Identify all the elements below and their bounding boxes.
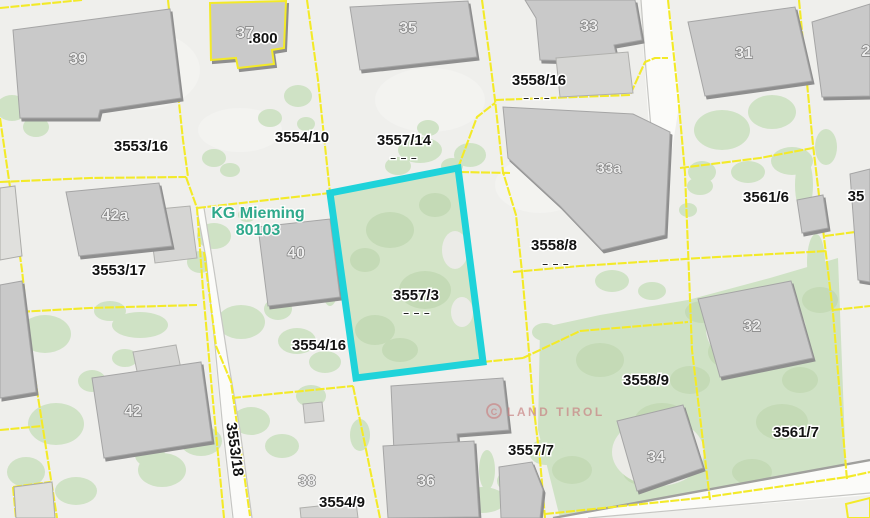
boundary-line — [460, 172, 510, 173]
building-label: 33 — [580, 18, 598, 35]
parcel-label-edge-partial: 35 — [848, 188, 865, 205]
building-label: 31 — [735, 45, 753, 62]
vegetation-patch — [55, 477, 97, 505]
cadastral-map-view[interactable]: 39 37 35 33 31 2 42a 40 33a 32 42 36 34 … — [0, 0, 870, 518]
vegetation-patch — [638, 282, 666, 300]
parcel-label-3561-7: 3561/7 — [773, 424, 819, 441]
parcel-label-3557-3: 3557/3 — [393, 287, 439, 304]
parcel-dashes: – – – — [523, 93, 550, 104]
building-label: 40 — [287, 245, 305, 262]
vegetation-patch — [670, 366, 710, 394]
vegetation-patch — [355, 315, 395, 345]
building-label: 33a — [596, 160, 622, 177]
vegetation-patch — [815, 129, 837, 165]
vegetation-patch — [807, 234, 825, 290]
vegetation-patch — [576, 343, 624, 377]
building-label: 39 — [69, 51, 87, 68]
parcel-label-3553-17: 3553/17 — [92, 262, 146, 279]
vegetation-patch — [28, 403, 84, 445]
map-canvas[interactable]: 39 37 35 33 31 2 42a 40 33a 32 42 36 34 … — [0, 0, 870, 518]
parcel-label-3558-9: 3558/9 — [623, 372, 669, 389]
building-label: 42 — [124, 403, 142, 420]
parcel-label-3561-6: 3561/6 — [743, 189, 789, 206]
vegetation-patch — [258, 109, 282, 127]
kg-number: 80103 — [236, 222, 281, 239]
vegetation-patch — [382, 338, 418, 362]
parcel-dashes: – – – — [390, 153, 417, 164]
building-label: 2 — [862, 43, 870, 60]
building-label: 35 — [399, 20, 417, 37]
vegetation-patch — [731, 161, 765, 183]
vegetation-patch — [687, 177, 713, 195]
watermark-text: LAND TIROL — [507, 405, 605, 419]
parcel-label-3558-8: 3558/8 — [531, 237, 577, 254]
vegetation-patch — [94, 301, 126, 321]
parcel-label-3554-9: 3554/9 — [319, 494, 365, 511]
parcel-label-3557-14: 3557/14 — [377, 132, 432, 149]
vegetation-patch — [552, 456, 592, 484]
vegetation-patch — [309, 351, 341, 373]
building-label: 36 — [417, 473, 435, 490]
vegetation-patch — [595, 270, 629, 292]
vegetation-patch — [265, 434, 299, 458]
building-label: 42a — [102, 207, 129, 224]
building-label: 38 — [298, 473, 316, 490]
shed — [303, 402, 324, 423]
vegetation-patch — [479, 450, 495, 490]
vegetation-patch — [350, 248, 380, 272]
building-corner-partial — [14, 482, 55, 518]
parcel-label-3554-10: 3554/10 — [275, 129, 329, 146]
vegetation-patch — [694, 110, 750, 150]
vegetation-patch — [679, 203, 697, 217]
clearing — [451, 297, 473, 327]
building-label: 34 — [647, 449, 665, 466]
building-42 — [92, 362, 212, 458]
parcel-label-3553-16: 3553/16 — [114, 138, 168, 155]
vegetation-patch — [284, 85, 312, 107]
elevation-label-800: .800 — [248, 30, 277, 47]
vegetation-patch — [202, 149, 226, 167]
vegetation-patch — [220, 163, 240, 177]
vegetation-patch — [782, 367, 818, 393]
vegetation-patch — [23, 117, 49, 137]
parcel-label-3557-7: 3557/7 — [508, 442, 554, 459]
vegetation-patch — [565, 382, 591, 400]
parcel-dashes: – – – — [542, 259, 569, 270]
vegetation-patch — [532, 323, 558, 341]
building-small-3561-6 — [797, 195, 828, 233]
copyright-letter: C — [491, 407, 498, 417]
building-label: 32 — [743, 318, 761, 335]
parcel-dashes: – – – — [403, 308, 430, 319]
vegetation-patch — [748, 95, 796, 129]
parcel-label-3554-16: 3554/16 — [292, 337, 346, 354]
vegetation-patch — [419, 193, 451, 217]
building-33-wing — [556, 52, 633, 97]
kg-name: KG Mieming — [211, 205, 304, 222]
vegetation-patch — [366, 212, 414, 248]
parcel-label-3558-16: 3558/16 — [512, 72, 566, 89]
